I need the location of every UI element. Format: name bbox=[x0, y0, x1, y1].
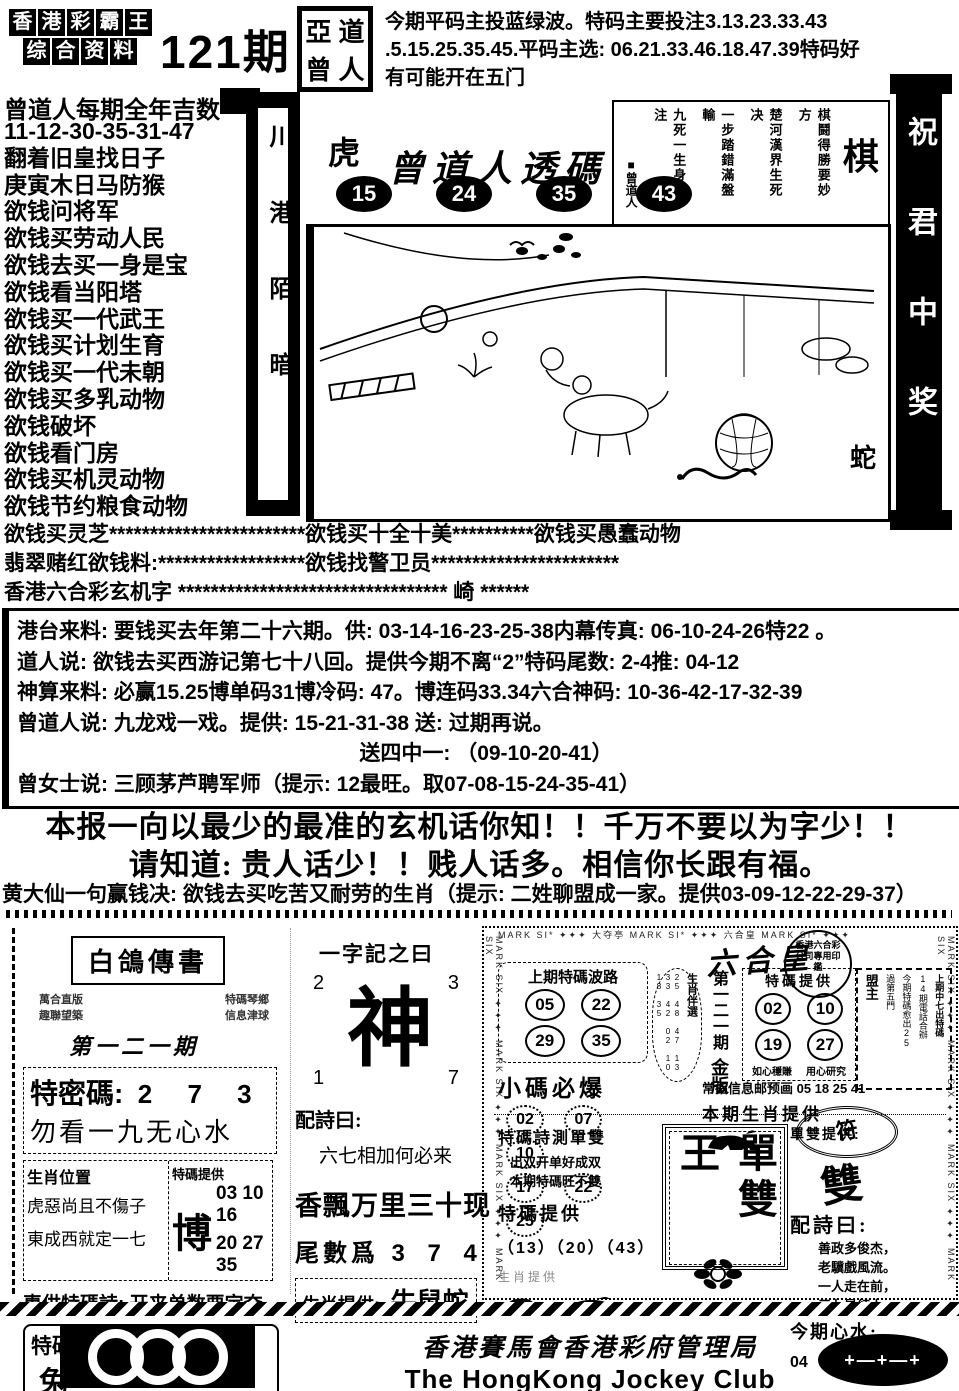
sd-poem-line: 一人走在前， bbox=[818, 1276, 942, 1295]
chess-col: 楚河漢界生死决 bbox=[747, 108, 785, 204]
chess-col: 九死一生身心注 bbox=[650, 108, 688, 204]
corner-digit: 2 bbox=[313, 972, 324, 995]
zodiac-oval-label: 生肖伴選 bbox=[684, 973, 700, 1077]
panel-divider bbox=[494, 1114, 946, 1115]
secret-code-label: 特密碼: bbox=[30, 1078, 123, 1109]
sd-poem-line: 老驥戲風流。 bbox=[818, 1257, 942, 1276]
masthead-row1: 香港彩霸王 bbox=[8, 8, 158, 37]
tema-box: 特碼提供 02 10 19 27 如心穩賺 用心研究 bbox=[742, 968, 856, 1081]
logo-ring-icon bbox=[172, 1329, 228, 1385]
mengzhu-line: 今期特碼愈出25 bbox=[900, 974, 913, 1084]
scroll-chars: 川港陌暗 bbox=[261, 124, 296, 428]
burst-title: 小碼必爆 bbox=[498, 1069, 648, 1103]
mengzhu-box: 上期中七出特碼 14期電話合辦 今期特碼愈出25 過第五門 盟主 bbox=[856, 968, 952, 1090]
right-scroll-banner: 祝君中奖 bbox=[896, 94, 942, 510]
star-row: 香港六合彩玄机字 *******************************… bbox=[4, 578, 954, 607]
word-poem-text: 六七相加何必来 bbox=[319, 1141, 485, 1168]
word-title: 一字記之曰 bbox=[319, 938, 485, 968]
zodiac-box: 生肖提供: 牛鼠蛇 bbox=[295, 1278, 477, 1323]
list-item: 欲钱买计划生育 bbox=[4, 332, 195, 359]
masthead-row2: 综合资料 bbox=[22, 37, 158, 66]
info-line: 曾女士说: 三顾茅芦聘军师（提示: 12最旺。取07-08-15-24-35-4… bbox=[17, 770, 955, 801]
zodiac-tiger-label: 虎 bbox=[328, 128, 360, 174]
tema-title: 特碼提供 bbox=[745, 971, 853, 991]
info-line-small: 常指信息邮预画 05 18 25 41 bbox=[702, 1078, 865, 1097]
wave-title: 上期特碼波路 bbox=[502, 966, 644, 987]
scroll-cap bbox=[246, 500, 300, 516]
tips-info-box: 港台来料: 要钱买去年第二十六期。供: 03-14-16-23-25-38内幕传… bbox=[2, 608, 959, 809]
list-item: 欲钱看当阳塔 bbox=[4, 279, 195, 306]
mengzhu-label: 盟主 bbox=[862, 974, 881, 1000]
list-item: 11-12-30-35-31-47 bbox=[4, 118, 195, 145]
sd-poem-label: 配詩曰: bbox=[790, 1209, 942, 1238]
issue-number: 121期 bbox=[160, 16, 291, 82]
list-item: 欲钱去买一身是宝 bbox=[4, 252, 195, 279]
tema-number: 19 bbox=[755, 1029, 791, 1061]
tip-line: 有可能开在五门 bbox=[385, 64, 953, 92]
tema-note: 用心研究 bbox=[806, 1063, 846, 1078]
info-line: 送四中一: （09-10-20-41） bbox=[17, 739, 955, 770]
ornament-strip bbox=[6, 910, 952, 918]
flower-ornament-icon bbox=[688, 1258, 748, 1290]
scroll-cap bbox=[890, 74, 952, 94]
corner-digit: 1 bbox=[313, 1067, 324, 1090]
chess-col: 一步踏錯滿盤輸 bbox=[698, 108, 736, 204]
corner-digit: 3 bbox=[448, 972, 459, 995]
mengzhu-line: 過第五門 bbox=[884, 974, 897, 1084]
small-text: 信息津球 bbox=[225, 1007, 269, 1023]
sd-poem: 出双开单好成双 bbox=[510, 1152, 648, 1171]
wave-number: 22 bbox=[581, 989, 621, 1021]
seal-char: 道 bbox=[338, 12, 364, 49]
scroll-chars: 祝君中奖 bbox=[897, 116, 941, 476]
masthead-char: 合 bbox=[52, 38, 79, 65]
publisher-seal: 亞 道 曾 人 bbox=[297, 6, 373, 92]
table-cell: 虎惡尚且不傷子 bbox=[27, 1192, 165, 1217]
masthead-char: 王 bbox=[125, 9, 152, 36]
table-header: 生肖位置 bbox=[27, 1164, 165, 1188]
pigeon-small-left: 萬合直版 趣聯望築 bbox=[39, 991, 83, 1023]
sd-king-frame: 單雙王 bbox=[662, 1124, 788, 1270]
info-line: 港台来料: 要钱买去年第二十六期。供: 03-14-16-23-25-38内幕传… bbox=[17, 617, 955, 648]
tip-line: .5.15.25.35.45.平码主选: 06.21.33.46.18.47.3… bbox=[385, 36, 953, 64]
masthead-logo: 香港彩霸王 综合资料 bbox=[8, 8, 158, 66]
scroll-cap bbox=[246, 92, 300, 108]
left-column-list: 11-12-30-35-31-47 翻着旧皇找日子 庚寅木日马防猴 欲钱问将军 … bbox=[4, 118, 195, 520]
list-item: 庚寅木日马防猴 bbox=[4, 172, 195, 199]
tip-sheet-page: 香港彩霸王 综合资料 121期 亞 道 曾 人 今期平码主投蓝绿波。特码主要投注… bbox=[0, 0, 959, 1391]
sd-poem: 本期特碼旺不雙 bbox=[510, 1171, 648, 1190]
lucky-number: 24 bbox=[436, 176, 492, 212]
sd-tema-numbers: （13）（20）（43） bbox=[498, 1234, 648, 1258]
pigeon-small-right: 特碼琴鄉 信息津球 bbox=[225, 991, 269, 1023]
tip-line: 今期平码主投蓝绿波。特码主要投注3.13.23.33.43 bbox=[385, 8, 953, 36]
sd-column: 特碼詩測單雙 出双开单好成双 本期特碼旺不雙 特碼提供 （13）（20）（43）… bbox=[498, 1124, 648, 1320]
issue-vertical: 第一二一期 金版 bbox=[706, 970, 736, 1094]
corner-digit: 7 bbox=[448, 1067, 459, 1090]
chess-title-small: 棋鬪得勝要妙方 bbox=[795, 108, 833, 204]
pigeon-issue: 第一二一期 bbox=[69, 1029, 299, 1061]
word-big-line: 香飄万里三十现 bbox=[295, 1184, 485, 1223]
hkjc-logo bbox=[60, 1326, 255, 1388]
masthead-char: 彩 bbox=[67, 9, 94, 36]
zodiac-oval-nums: 25 48 47 13 33 42 02 10 18 35 bbox=[655, 973, 682, 1077]
seal-char: 人 bbox=[338, 50, 364, 87]
secret-code-box: 特密碼: 2 7 3 勿看一九无心水 bbox=[23, 1067, 277, 1154]
table-header: 特碼提供 bbox=[172, 1164, 269, 1183]
wave-number: 29 bbox=[525, 1025, 565, 1057]
masthead-char: 港 bbox=[38, 9, 65, 36]
tema-number: 02 bbox=[755, 993, 791, 1025]
seal-char: 曾 bbox=[305, 50, 331, 87]
zodiac-oval: 25 48 47 13 33 42 02 10 18 35 生肖伴選 bbox=[652, 968, 702, 1082]
masthead-char: 香 bbox=[9, 9, 36, 36]
word-block: 2 3 1 7 神 bbox=[311, 972, 461, 1090]
wave-number: 05 bbox=[525, 989, 565, 1021]
sd-zodiac-label: 生肖提供 bbox=[498, 1268, 648, 1285]
table-cell: 20 27 35 bbox=[216, 1233, 269, 1277]
secret-code-hint: 勿看一九无心水 bbox=[30, 1112, 270, 1149]
sd-right-glyph: 雙 bbox=[816, 1138, 945, 1215]
scene-drawing-frame bbox=[306, 224, 891, 522]
tema-note: 如心穩賺 bbox=[752, 1063, 792, 1078]
pigeon-title: 白鴿傳書 bbox=[71, 936, 225, 985]
wave-number: 35 bbox=[581, 1025, 621, 1057]
sd-king-title: 單雙王 bbox=[667, 1132, 783, 1264]
chess-poem-box: ■曾道人 九死一生身心注 一步踏錯滿盤輸 楚河漢界生死决 棋鬪得勝要妙方 棋 bbox=[612, 100, 890, 226]
sd-poem-line: 善政多俊杰， bbox=[818, 1238, 942, 1257]
info-line: 神算来料: 必赢15.25博单码31博冷码: 47。博连码33.34六合神码: … bbox=[17, 678, 955, 709]
masthead-char: 资 bbox=[81, 38, 108, 65]
footer-badge: +—+—+ bbox=[818, 1334, 948, 1386]
huangdaxian-line: 黄大仙一句赢钱决: 欲钱去买吃苦又耐劳的生肖（提示: 二姓聊盟成一家。提供03-… bbox=[2, 878, 957, 908]
list-item: 欲钱看门房 bbox=[4, 440, 195, 467]
small-text: 特碼琴鄉 bbox=[225, 991, 269, 1007]
footer-text: 香港賽馬會香港彩府管理局 The HongKong Jockey Club bbox=[380, 1328, 800, 1391]
chess-big-char: 棋 bbox=[843, 128, 879, 180]
zodiac-position-table: 生肖位置 虎惡尚且不傷子 東成西就定一七 特碼提供 博 03 10 16 20 … bbox=[23, 1160, 273, 1281]
tail-label: 尾數爲 bbox=[295, 1241, 379, 1267]
star-row: 欲钱买灵芝************************欲钱买十全十美****… bbox=[4, 520, 954, 549]
pigeon-panel: 白鴿傳書 萬合直版 趣聯望築 特碼琴鄉 信息津球 第一二一期 特密碼: 2 7 … bbox=[12, 928, 299, 1294]
issue-vert-text: 第一二一期 bbox=[706, 970, 730, 1056]
list-item: 欲钱买一代未朝 bbox=[4, 359, 195, 386]
header-tips: 今期平码主投蓝绿波。特码主要投注3.13.23.33.43 .5.15.25.3… bbox=[385, 8, 953, 92]
list-item: 欲钱买多乳动物 bbox=[4, 386, 195, 413]
badge-text: +—+—+ bbox=[844, 1350, 922, 1370]
masthead-char: 霸 bbox=[96, 9, 123, 36]
footer-cn: 香港賽馬會香港彩府管理局 bbox=[380, 1328, 800, 1364]
mengzhu-line: 上期中七出特碼 bbox=[933, 974, 946, 1084]
lucky-number: 15 bbox=[336, 176, 392, 212]
sd-tema-label: 特碼提供 bbox=[498, 1200, 648, 1226]
word-panel: 一字記之曰 2 3 1 7 神 配詩曰: 六七相加何必来 香飄万里三十现 尾數爲… bbox=[290, 928, 485, 1294]
mengzhu-line: 14期電話合辦 bbox=[917, 974, 930, 1084]
word-poem-label: 配詩曰: bbox=[295, 1104, 485, 1133]
tema-number: 10 bbox=[807, 993, 843, 1025]
list-item: 欲钱买机灵动物 bbox=[4, 466, 195, 493]
list-item: 翻着旧皇找日子 bbox=[4, 145, 195, 172]
secret-code-value: 2 7 3 bbox=[138, 1079, 266, 1109]
tema-number: 27 bbox=[807, 1029, 843, 1061]
info-line: 曾道人说: 九龙戏一戏。提供: 15-21-31-38 送: 过期再说。 bbox=[17, 709, 955, 740]
list-item: 欲钱买劳动人民 bbox=[4, 225, 195, 252]
seal-char: 亞 bbox=[305, 12, 331, 49]
word-big-char: 神 bbox=[347, 974, 433, 1084]
zigzag-border bbox=[0, 1302, 959, 1316]
lucky-number: 35 bbox=[536, 176, 592, 212]
left-scroll-banner: 川港陌暗 bbox=[246, 108, 300, 500]
masthead-char: 综 bbox=[23, 38, 50, 65]
list-item: 欲钱破坏 bbox=[4, 413, 195, 440]
king-panel: MARK SI* ✦✦✦ 大夺亭 MARK SI* ✦✦✦ 六合皇 MARK S… bbox=[482, 926, 958, 1300]
list-item: 欲钱买一代武王 bbox=[4, 306, 195, 333]
star-row: 翡翠赌红欲钱料:******************欲钱找警卫员********… bbox=[4, 549, 954, 578]
table-cell: 03 10 16 bbox=[216, 1183, 269, 1227]
masthead-char: 料 bbox=[110, 38, 137, 65]
list-item: 欲钱问将军 bbox=[4, 198, 195, 225]
scene-drawing bbox=[314, 227, 880, 513]
list-item: 欲钱节约粮食动物 bbox=[4, 493, 195, 520]
bo-char: 博 bbox=[172, 1201, 212, 1259]
info-line: 道人说: 欲钱去买西游记第七十八回。提供今期不离“2”特码尾数: 2-4推: 0… bbox=[17, 648, 955, 679]
small-text: 萬合直版 bbox=[39, 991, 83, 1007]
zodiac-snake-label: 蛇 bbox=[850, 438, 876, 475]
small-text: 趣聯望築 bbox=[39, 1007, 83, 1023]
chess-author: ■曾道人 bbox=[623, 158, 640, 218]
footer-en: The HongKong Jockey Club bbox=[380, 1364, 800, 1391]
sd-title: 特碼詩測單雙 bbox=[498, 1124, 648, 1148]
table-cell: 東成西就定一七 bbox=[27, 1225, 165, 1250]
tail-value: 3 7 4 bbox=[391, 1240, 484, 1267]
